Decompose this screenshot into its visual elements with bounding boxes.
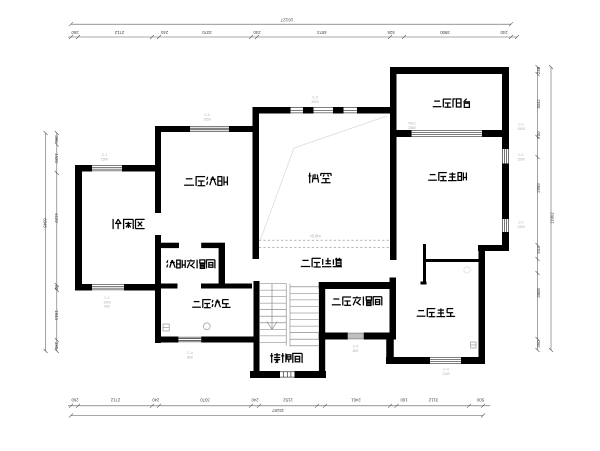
- svg-text:700: 700: [536, 131, 541, 139]
- svg-text:240: 240: [160, 30, 168, 35]
- svg-text:1500: 1500: [517, 157, 525, 161]
- svg-text:390: 390: [536, 340, 541, 348]
- svg-text:80: 80: [54, 285, 59, 290]
- svg-text:3042: 3042: [536, 99, 541, 109]
- svg-text:2152: 2152: [283, 398, 293, 403]
- svg-text:390: 390: [54, 135, 59, 143]
- svg-text:1500: 1500: [101, 157, 109, 161]
- svg-text:2461: 2461: [351, 398, 361, 403]
- svg-text:2712: 2712: [110, 398, 120, 403]
- svg-text:860: 860: [187, 355, 193, 359]
- svg-text:240: 240: [253, 30, 261, 35]
- svg-text:16127: 16127: [280, 17, 293, 22]
- svg-text:3900: 3900: [440, 30, 450, 35]
- svg-text:533: 533: [536, 246, 541, 254]
- svg-text:2580: 2580: [408, 126, 416, 130]
- svg-text:240: 240: [500, 30, 508, 35]
- svg-text:390: 390: [54, 342, 59, 350]
- svg-text:2712: 2712: [114, 30, 124, 35]
- svg-text:11002: 11002: [550, 212, 555, 224]
- svg-text:3370: 3370: [202, 30, 212, 35]
- svg-text:260: 260: [71, 398, 79, 403]
- svg-text:4000: 4000: [311, 100, 319, 104]
- svg-text:525: 525: [387, 30, 395, 35]
- svg-text:~8.0m: ~8.0m: [309, 234, 321, 239]
- svg-text:1843: 1843: [54, 310, 59, 320]
- svg-text:1160: 1160: [442, 372, 449, 376]
- svg-text:160: 160: [400, 398, 408, 403]
- svg-text:240: 240: [536, 66, 541, 74]
- svg-text:4122: 4122: [54, 213, 59, 223]
- svg-text:1500: 1500: [517, 127, 525, 131]
- svg-text:3370: 3370: [200, 398, 210, 403]
- svg-text:240: 240: [251, 398, 259, 403]
- svg-text:3112: 3112: [428, 398, 438, 403]
- svg-text:900: 900: [104, 305, 110, 309]
- svg-text:240: 240: [152, 398, 160, 403]
- svg-text:1520: 1520: [54, 153, 59, 163]
- svg-text:15187: 15187: [271, 408, 284, 413]
- svg-text:500: 500: [476, 398, 484, 403]
- svg-text:8345: 8345: [43, 218, 48, 228]
- svg-text:600: 600: [353, 349, 359, 353]
- svg-text:1500: 1500: [517, 225, 525, 229]
- svg-text:4873: 4873: [317, 30, 327, 35]
- svg-text:2969: 2969: [536, 183, 541, 193]
- svg-text:260: 260: [71, 30, 79, 35]
- svg-text:3808: 3808: [536, 288, 541, 298]
- svg-text:1650: 1650: [203, 117, 211, 121]
